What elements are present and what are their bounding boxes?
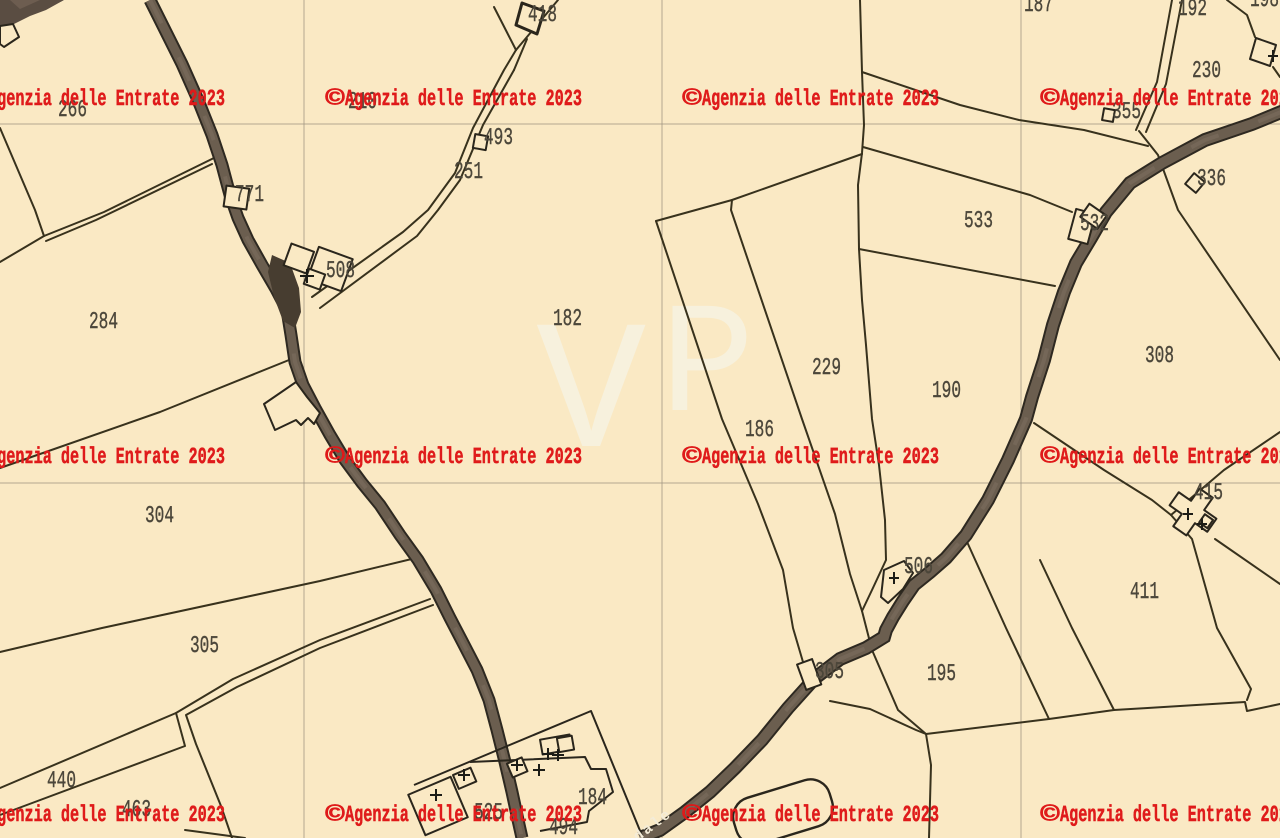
svg-text:532: 532: [1080, 211, 1109, 238]
svg-text:©: ©: [1040, 444, 1060, 470]
svg-text:190: 190: [932, 378, 961, 405]
svg-text:©: ©: [325, 444, 345, 470]
svg-text:184: 184: [578, 785, 607, 812]
svg-text:Agenzia delle Entrate 2023: Agenzia delle Entrate 2023: [702, 444, 939, 470]
svg-text:182: 182: [553, 306, 582, 333]
svg-text:©: ©: [325, 86, 345, 112]
svg-text:©: ©: [1040, 802, 1060, 828]
svg-text:195: 195: [927, 661, 956, 688]
svg-text:229: 229: [812, 355, 841, 382]
svg-text:336: 336: [1197, 166, 1226, 193]
svg-text:771: 771: [235, 182, 264, 209]
svg-text:508: 508: [326, 258, 355, 285]
svg-text:192: 192: [1178, 0, 1207, 23]
svg-text:411: 411: [1130, 579, 1159, 606]
svg-text:305: 305: [190, 633, 219, 660]
svg-text:284: 284: [89, 309, 118, 336]
svg-text:Agenzia delle Entrate 2023: Agenzia delle Entrate 2023: [702, 802, 939, 828]
svg-text:305: 305: [815, 659, 844, 686]
svg-text:P: P: [660, 279, 755, 458]
svg-text:198: 198: [1250, 0, 1279, 14]
svg-text:©: ©: [682, 444, 702, 470]
svg-text:©: ©: [325, 802, 345, 828]
svg-text:418: 418: [528, 2, 557, 29]
svg-text:493: 493: [484, 125, 513, 152]
svg-text:415: 415: [1194, 480, 1223, 507]
svg-text:506: 506: [904, 554, 933, 581]
svg-text:187: 187: [1024, 0, 1053, 19]
svg-text:Agenzia delle Entrate 2023: Agenzia delle Entrate 2023: [345, 444, 582, 470]
svg-text:Agenzia delle Entrate 2023: Agenzia delle Entrate 2023: [1060, 86, 1280, 112]
svg-text:Agenzia delle Entrate 2023: Agenzia delle Entrate 2023: [1060, 802, 1280, 828]
svg-text:Agenzia delle Entrate 2023: Agenzia delle Entrate 2023: [0, 802, 225, 828]
svg-text:440: 440: [47, 768, 76, 795]
svg-text:251: 251: [454, 159, 483, 186]
svg-text:533: 533: [964, 208, 993, 235]
svg-text:308: 308: [1145, 343, 1174, 370]
svg-text:304: 304: [145, 503, 174, 530]
svg-text:230: 230: [1192, 58, 1221, 85]
svg-text:Agenzia delle Entrate 2023: Agenzia delle Entrate 2023: [345, 86, 582, 112]
svg-text:©: ©: [1040, 86, 1060, 112]
svg-text:Agenzia delle Entrate 2023: Agenzia delle Entrate 2023: [0, 86, 225, 112]
svg-text:Agenzia delle Entrate 2023: Agenzia delle Entrate 2023: [702, 86, 939, 112]
svg-text:Agenzia delle Entrate 2023: Agenzia delle Entrate 2023: [1060, 444, 1280, 470]
svg-text:Agenzia delle Entrate 2023: Agenzia delle Entrate 2023: [0, 444, 225, 470]
svg-text:Agenzia delle Entrate 2023: Agenzia delle Entrate 2023: [345, 802, 582, 828]
svg-text:©: ©: [682, 802, 702, 828]
svg-text:186: 186: [745, 417, 774, 444]
svg-text:©: ©: [682, 86, 702, 112]
